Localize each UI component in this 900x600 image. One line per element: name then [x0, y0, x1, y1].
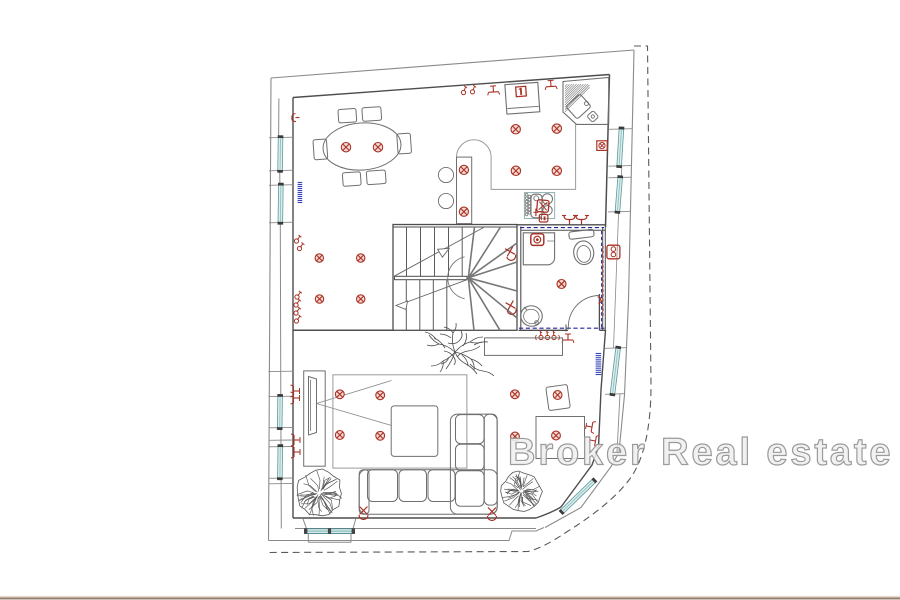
svg-text:Broker Real estate: Broker Real estate	[508, 432, 893, 474]
